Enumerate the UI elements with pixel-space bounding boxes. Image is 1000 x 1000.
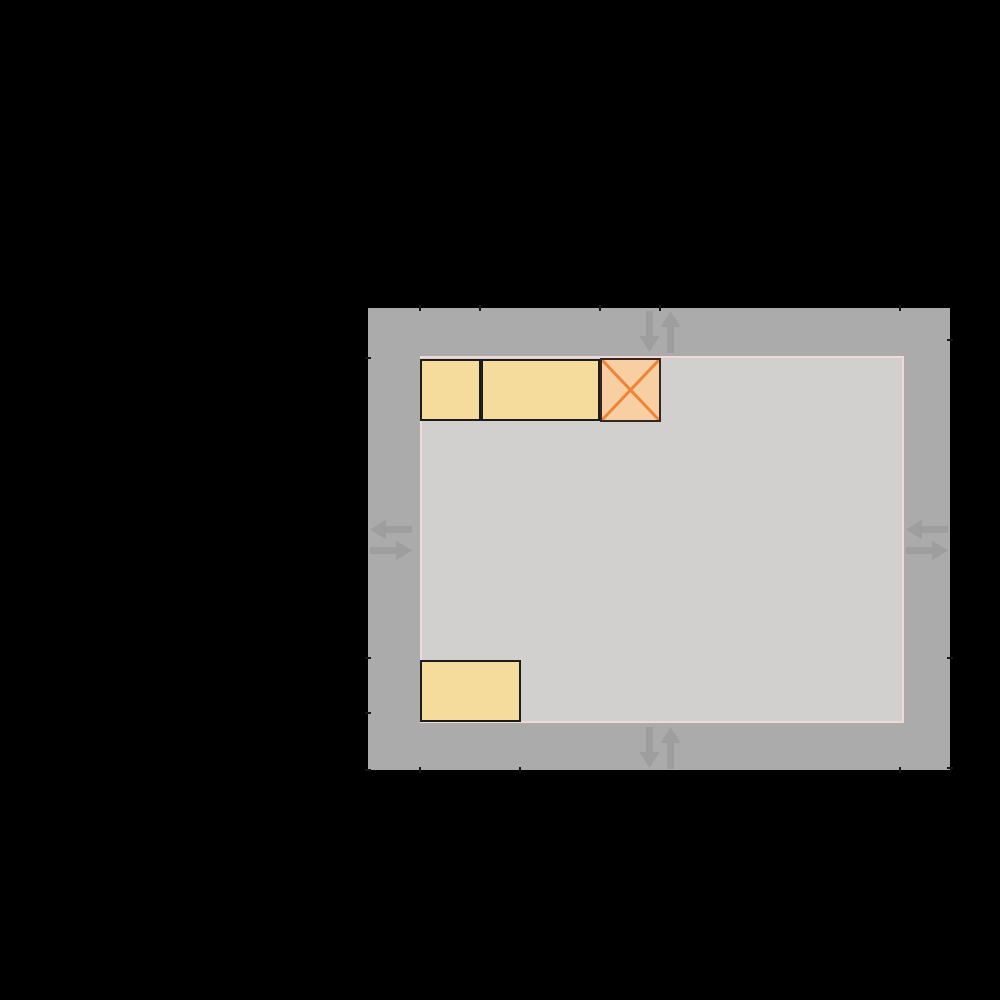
left-right-arrow-icon	[369, 516, 413, 564]
traffic-arrows-bottom	[636, 726, 684, 770]
scene	[0, 0, 1000, 1000]
axis-tick-left	[365, 357, 371, 359]
furniture-box-top-left	[420, 359, 481, 421]
axis-tick-right	[947, 657, 953, 659]
down-up-arrow-icon	[636, 726, 684, 770]
axis-tick-bottom	[419, 767, 421, 773]
axis-tick-top	[899, 305, 901, 311]
cross-icon	[602, 360, 659, 420]
down-up-arrow-icon	[636, 310, 684, 354]
traffic-arrows-left	[369, 516, 413, 564]
furniture-box-top-middle	[481, 359, 600, 421]
furniture-box-bottom-left	[420, 660, 521, 722]
traffic-arrows-top	[636, 310, 684, 354]
axis-tick-top	[479, 305, 481, 311]
axis-tick-bottom	[519, 767, 521, 773]
axis-tick-top	[419, 305, 421, 311]
axis-tick-right	[947, 767, 953, 769]
crossed-obstacle-box	[600, 358, 661, 422]
axis-tick-top	[599, 305, 601, 311]
axis-tick-right	[947, 339, 953, 341]
left-right-arrow-icon	[905, 516, 949, 564]
traffic-arrows-right	[905, 516, 949, 564]
axis-tick-bottom	[899, 767, 901, 773]
axis-tick-left	[365, 657, 371, 659]
axis-tick-left	[365, 712, 371, 714]
axis-tick-left	[365, 769, 371, 771]
